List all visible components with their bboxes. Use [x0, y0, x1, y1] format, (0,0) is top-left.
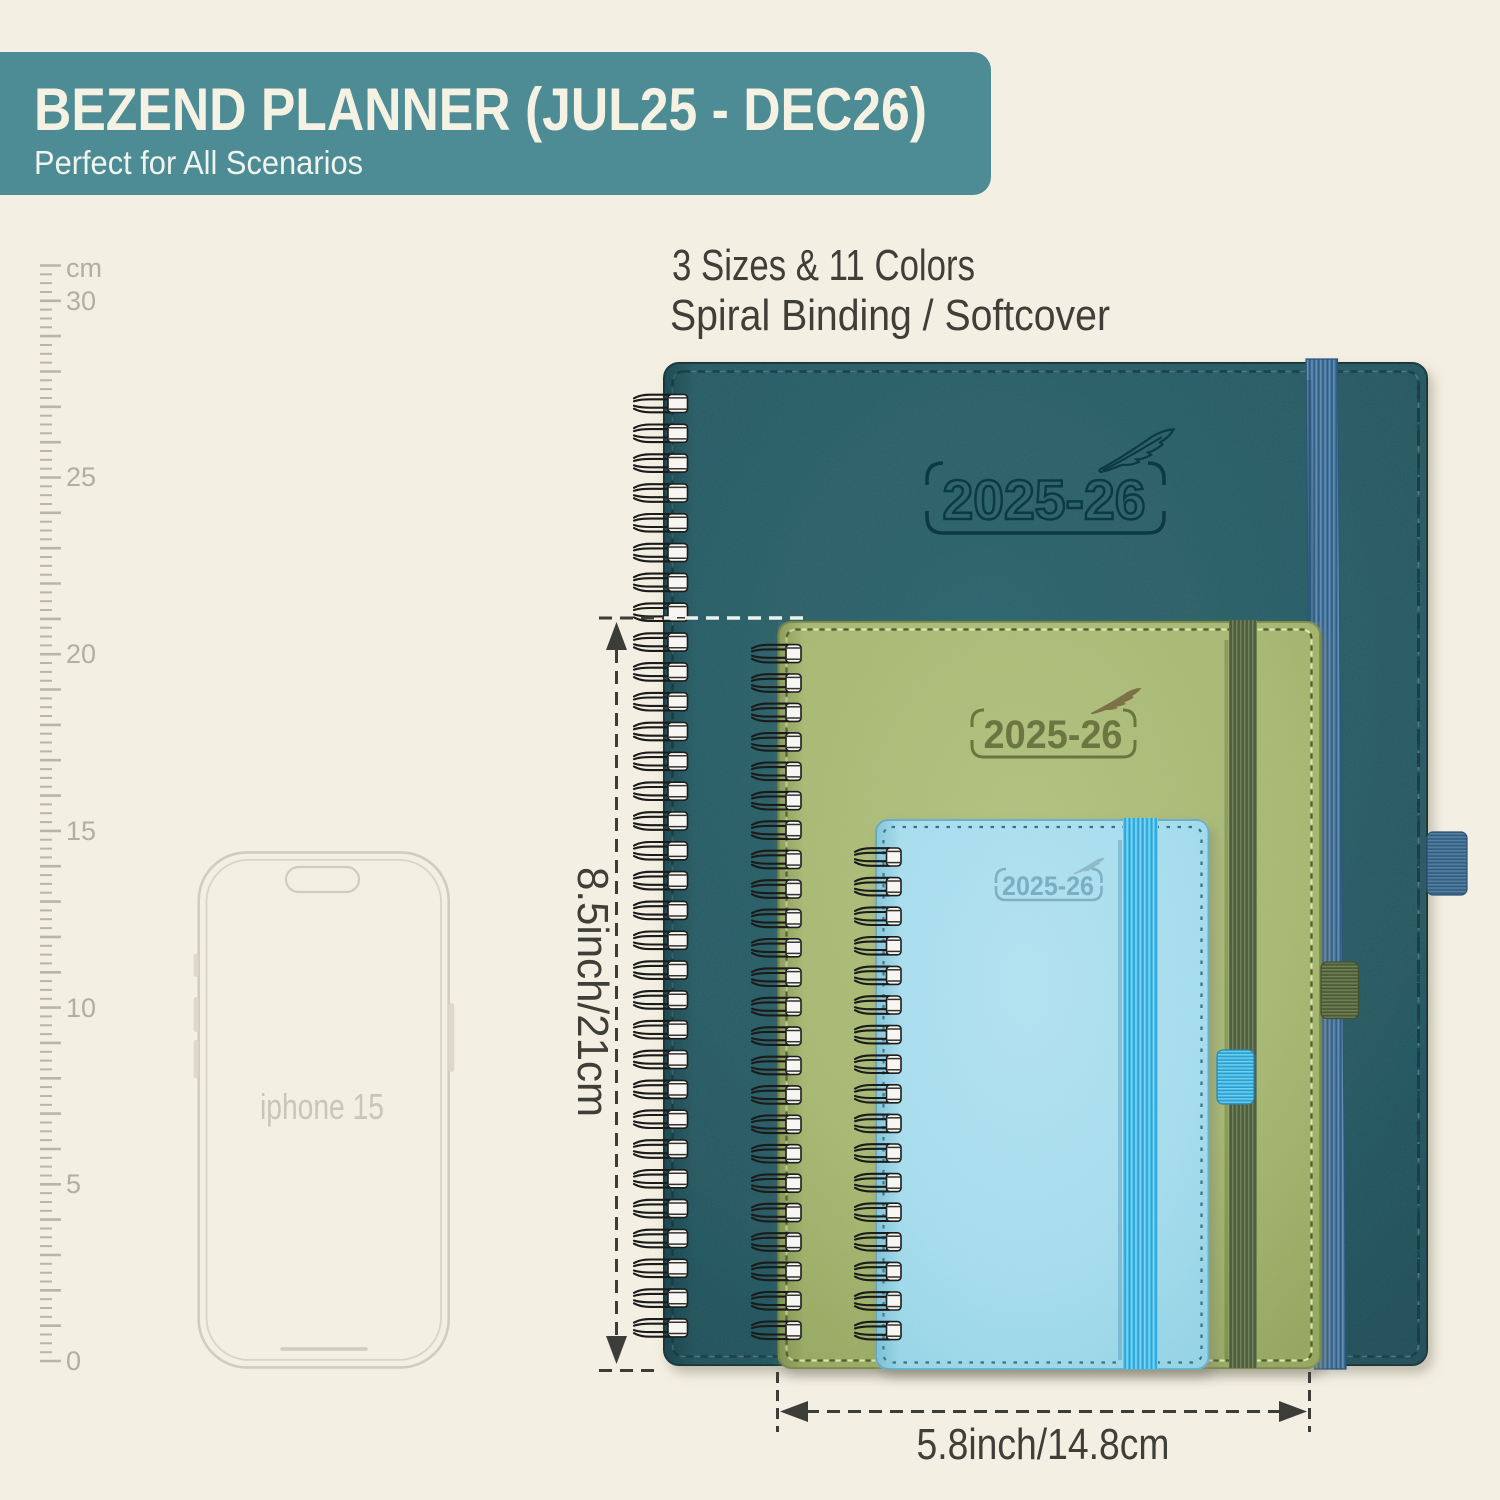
svg-text:Spiral Binding / Softcover: Spiral Binding / Softcover — [670, 291, 1110, 340]
svg-text:2025-26: 2025-26 — [984, 713, 1123, 757]
svg-text:cm: cm — [66, 253, 102, 283]
svg-text:iphone 15: iphone 15 — [260, 1086, 384, 1127]
svg-text:2025-26: 2025-26 — [943, 468, 1146, 531]
svg-text:5: 5 — [66, 1169, 81, 1199]
svg-text:10: 10 — [66, 993, 96, 1023]
svg-text:Perfect for All Scenarios: Perfect for All Scenarios — [34, 144, 363, 181]
svg-text:8.5inch/21cm: 8.5inch/21cm — [568, 867, 617, 1117]
svg-text:2025-26: 2025-26 — [1002, 871, 1094, 901]
svg-text:15: 15 — [66, 816, 96, 846]
svg-text:3 Sizes & 11 Colors: 3 Sizes & 11 Colors — [672, 241, 975, 290]
svg-text:BEZEND PLANNER (JUL25 - DEC26): BEZEND PLANNER (JUL25 - DEC26) — [34, 76, 927, 143]
svg-text:30: 30 — [66, 286, 96, 316]
svg-text:5.8inch/14.8cm: 5.8inch/14.8cm — [917, 1420, 1170, 1469]
svg-text:0: 0 — [66, 1346, 81, 1376]
svg-text:25: 25 — [66, 462, 96, 492]
svg-text:20: 20 — [66, 639, 96, 669]
